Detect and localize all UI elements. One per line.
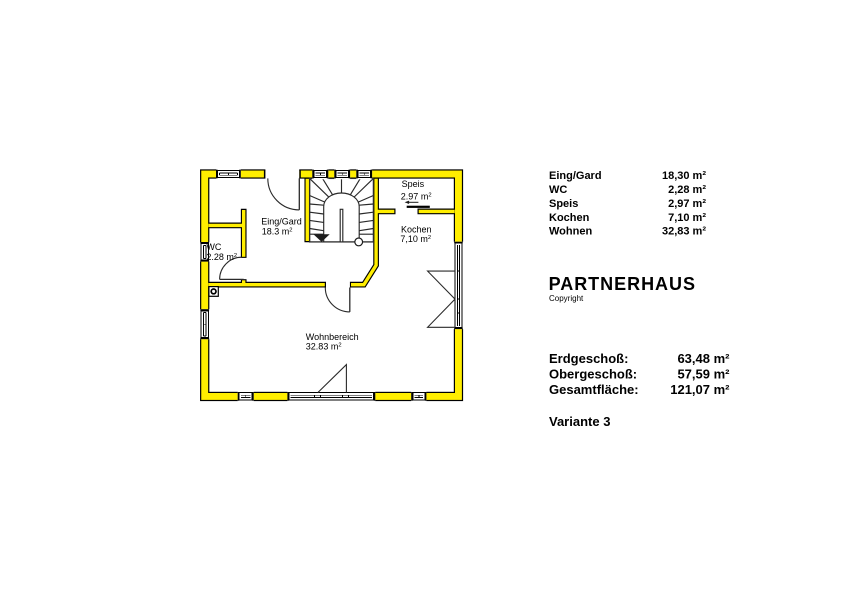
svg-text:Gesamtfläche:: Gesamtfläche: (549, 382, 639, 397)
svg-text:2,28 m²: 2,28 m² (668, 184, 706, 196)
svg-text:Eing/Gard: Eing/Gard (261, 216, 302, 226)
svg-text:WC: WC (549, 184, 567, 196)
svg-text:18.3 m2: 18.3 m2 (262, 227, 293, 237)
svg-text:Copyright: Copyright (549, 294, 584, 303)
svg-text:32,83 m²: 32,83 m² (662, 226, 706, 238)
svg-text:PARTNERHAUS: PARTNERHAUS (549, 274, 695, 294)
svg-text:121,07 m²: 121,07 m² (670, 382, 730, 397)
svg-text:63,48 m²: 63,48 m² (677, 351, 730, 366)
svg-text:32.83 m2: 32.83 m2 (306, 342, 342, 352)
svg-text:2.97 m2: 2.97 m2 (401, 192, 432, 202)
svg-text:Erdgeschoß:: Erdgeschoß: (549, 351, 628, 366)
svg-text:Kochen: Kochen (549, 212, 590, 224)
svg-text:7,10 m²: 7,10 m² (668, 212, 706, 224)
svg-text:2,97 m²: 2,97 m² (668, 198, 706, 210)
svg-text:Obergeschoß:: Obergeschoß: (549, 367, 637, 382)
svg-text:Variante 3: Variante 3 (549, 414, 610, 429)
svg-text:18,30 m²: 18,30 m² (662, 170, 706, 182)
svg-text:Wohnbereich: Wohnbereich (306, 332, 359, 342)
svg-text:Eing/Gard: Eing/Gard (549, 170, 602, 182)
svg-text:Speis: Speis (549, 198, 578, 210)
svg-text:Speis: Speis (402, 179, 425, 189)
svg-text:7,10 m2: 7,10 m2 (400, 234, 431, 244)
svg-text:Wohnen: Wohnen (549, 226, 592, 238)
svg-text:2.28 m2: 2.28 m2 (206, 252, 237, 262)
svg-text:57,59 m²: 57,59 m² (677, 367, 730, 382)
svg-text:WC: WC (206, 242, 221, 252)
